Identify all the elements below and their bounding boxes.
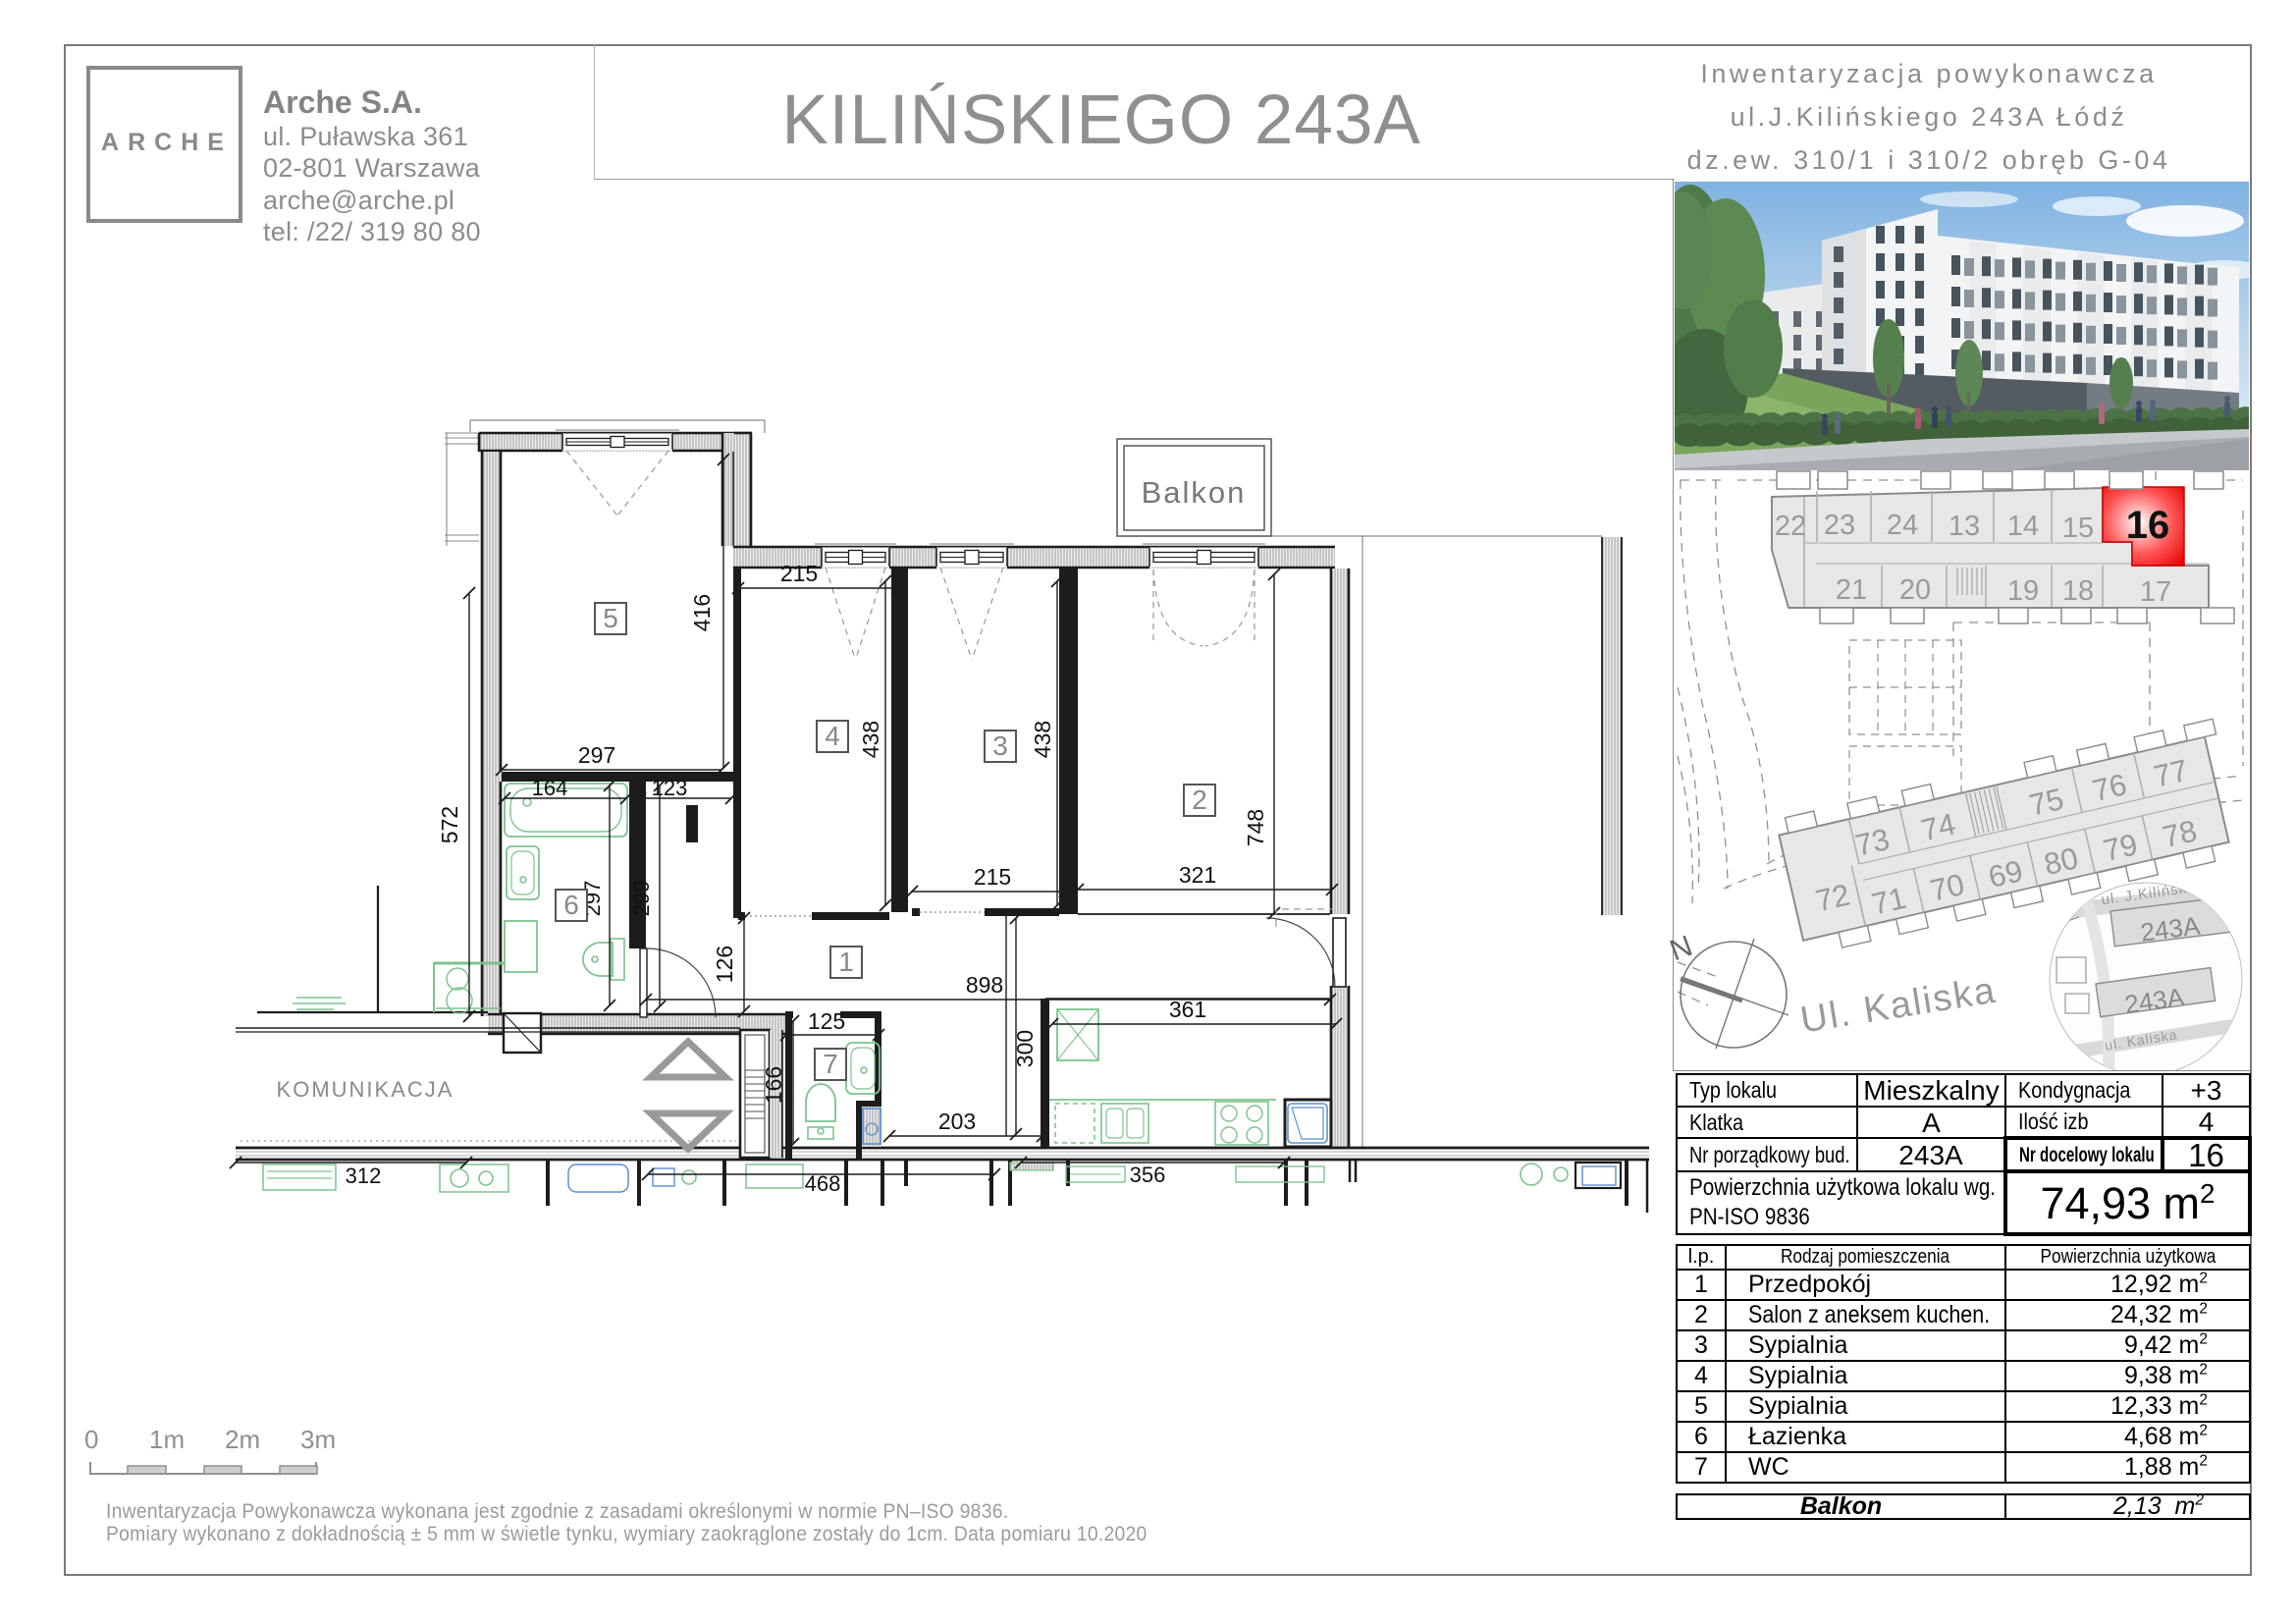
svg-text:21: 21 [1836,574,1867,606]
svg-text:297: 297 [578,742,615,768]
svg-text:2m: 2m [225,1429,260,1454]
svg-text:22: 22 [1775,511,1806,542]
svg-text:13: 13 [1949,511,1980,542]
svg-text:125: 125 [808,1008,845,1034]
svg-text:5: 5 [603,603,618,633]
svg-text:468: 468 [805,1171,841,1196]
svg-text:19: 19 [2007,575,2039,607]
svg-text:299: 299 [629,881,654,917]
svg-text:164: 164 [532,776,568,800]
svg-text:1m: 1m [149,1429,185,1454]
svg-text:Ul. Kaliska: Ul. Kaliska [1797,970,2000,1042]
svg-text:20: 20 [1899,574,1931,606]
svg-text:3: 3 [992,731,1008,761]
svg-text:17: 17 [2140,576,2171,608]
svg-text:23: 23 [1824,510,1855,541]
svg-text:1: 1 [838,947,854,977]
svg-text:321: 321 [1179,862,1216,888]
svg-text:N: N [1666,930,1697,967]
svg-text:6: 6 [563,890,579,920]
svg-text:361: 361 [1169,997,1206,1022]
svg-text:898: 898 [966,972,1003,998]
svg-text:7: 7 [823,1049,838,1079]
svg-text:312: 312 [346,1164,382,1188]
svg-text:356: 356 [1130,1163,1166,1187]
svg-text:572: 572 [437,806,462,843]
svg-text:438: 438 [1030,721,1055,758]
svg-text:3m: 3m [300,1429,336,1454]
svg-text:215: 215 [974,864,1011,890]
svg-text:16: 16 [2126,504,2170,547]
svg-text:438: 438 [858,721,883,758]
svg-text:126: 126 [712,946,737,983]
svg-text:166: 166 [761,1066,786,1104]
svg-text:24: 24 [1887,510,1918,541]
svg-text:203: 203 [938,1109,976,1134]
svg-text:416: 416 [689,594,715,631]
svg-text:2: 2 [1192,785,1207,815]
svg-text:14: 14 [2007,511,2039,542]
svg-text:15: 15 [2062,513,2094,544]
svg-text:Balkon: Balkon [1142,475,1247,510]
svg-text:0: 0 [84,1429,98,1454]
svg-text:4: 4 [825,721,840,751]
svg-text:748: 748 [1243,809,1268,846]
svg-text:KOMUNIKACJA: KOMUNIKACJA [277,1077,454,1102]
svg-text:18: 18 [2062,575,2094,607]
svg-text:300: 300 [1012,1030,1038,1067]
svg-text:215: 215 [780,561,818,586]
